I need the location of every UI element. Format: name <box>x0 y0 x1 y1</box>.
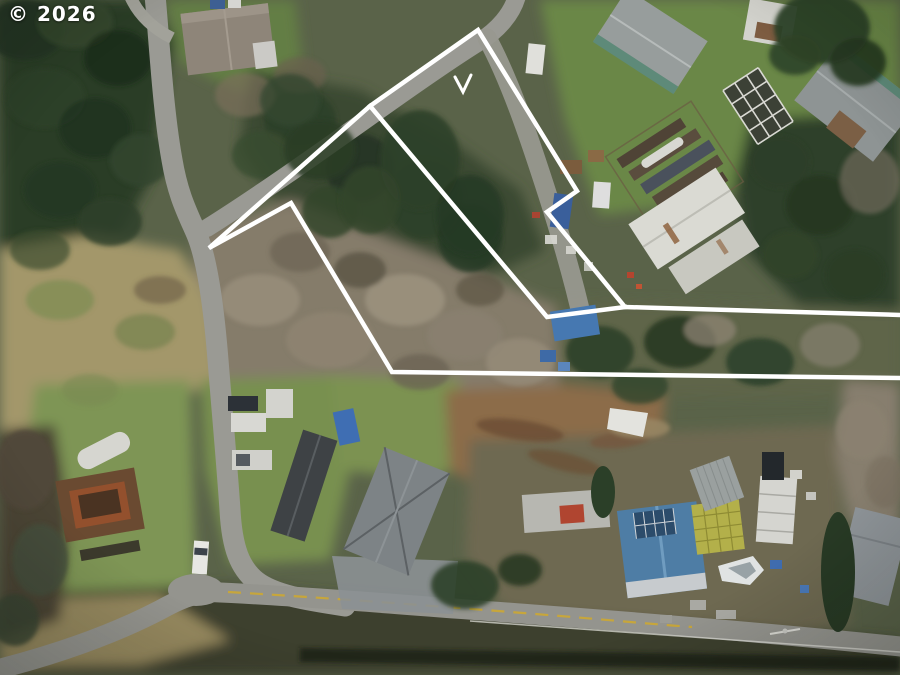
copyright-watermark: © 2026 <box>8 2 97 26</box>
aerial-photo <box>0 0 900 675</box>
aerial-photo-screenshot: © 2026 <box>0 0 900 675</box>
photo-vignette <box>0 0 900 675</box>
